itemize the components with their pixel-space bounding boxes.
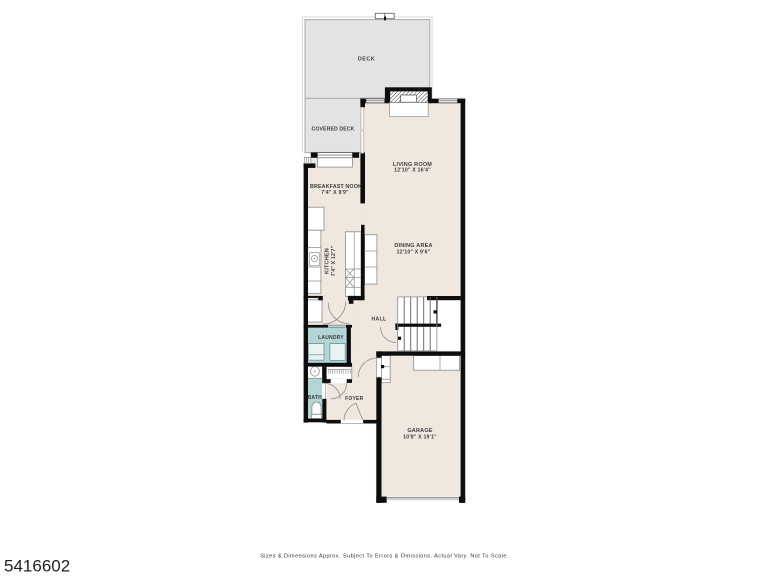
svg-text:10'8" X 19'1": 10'8" X 19'1" bbox=[403, 435, 437, 441]
svg-text:7'4" X 9'9": 7'4" X 9'9" bbox=[321, 190, 349, 196]
svg-text:5416602: 5416602 bbox=[4, 556, 70, 575]
svg-text:GARAGE: GARAGE bbox=[407, 428, 432, 434]
svg-text:HALL: HALL bbox=[371, 317, 387, 323]
svg-text:Sizes & Dimensions Approx. Sub: Sizes & Dimensions Approx. Subject To Er… bbox=[260, 554, 509, 560]
svg-text:12'10" X 9'6": 12'10" X 9'6" bbox=[397, 250, 431, 256]
svg-text:12'10" X 16'4": 12'10" X 16'4" bbox=[394, 168, 431, 174]
svg-text:FOYER: FOYER bbox=[345, 396, 363, 402]
svg-text:LAUNDRY: LAUNDRY bbox=[318, 335, 344, 341]
svg-text:KITCHEN: KITCHEN bbox=[325, 248, 331, 274]
svg-text:7'4" X 12'7": 7'4" X 12'7" bbox=[331, 245, 337, 276]
svg-text:DECK: DECK bbox=[358, 57, 375, 63]
svg-text:COVERED DECK: COVERED DECK bbox=[312, 127, 355, 133]
svg-text:DINING AREA: DINING AREA bbox=[394, 243, 432, 249]
svg-text:BATH: BATH bbox=[308, 395, 323, 401]
